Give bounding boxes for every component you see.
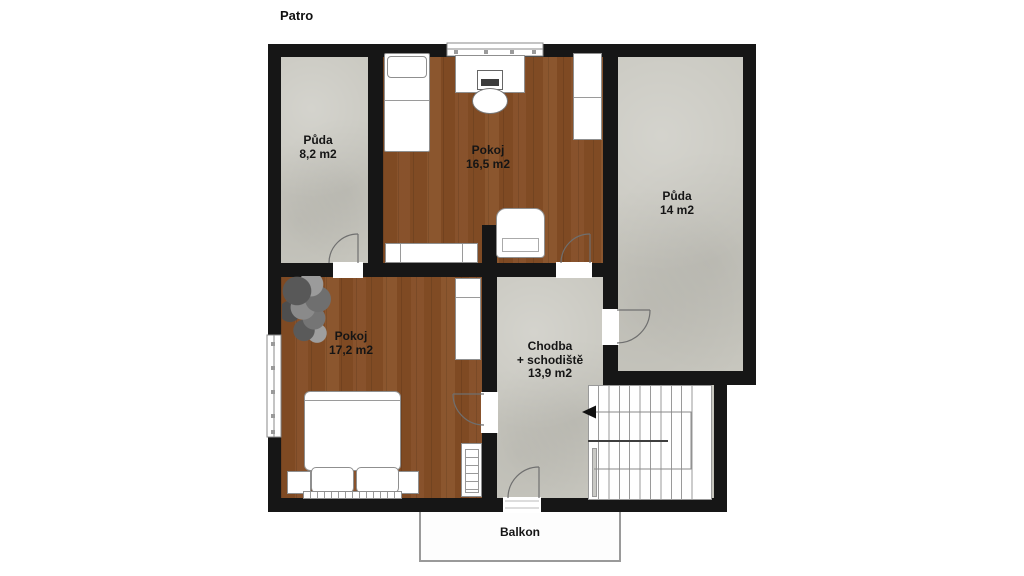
- wardrobe-top-divider: [574, 97, 601, 98]
- room-area: 13,9 m2: [494, 367, 606, 381]
- label-bedroom-top: Pokoj 16,5 m2: [440, 144, 536, 171]
- label-hallway: Chodba + schodiště 13,9 m2: [494, 340, 606, 381]
- room-area: 14 m2: [629, 204, 725, 218]
- wardrobe-bottom-room: [455, 278, 481, 360]
- room-name: Půda: [270, 134, 366, 148]
- double-bed-pillow-right: [356, 467, 399, 493]
- floor-plan: Patro Balkon: [0, 0, 1024, 576]
- stair-walk-line: [582, 406, 691, 470]
- window-left: [267, 335, 281, 437]
- stair-direction-arrow: [582, 406, 596, 419]
- armchair-seat: [502, 238, 539, 252]
- label-bedroom-bottom: Pokoj 17,2 m2: [303, 330, 399, 357]
- double-bed-headboard: [303, 491, 402, 499]
- double-bed-fold-line: [305, 400, 400, 401]
- wardrobe-bottom-divider: [456, 297, 480, 298]
- room-name-2: + schodiště: [494, 354, 606, 368]
- room-name: Pokoj: [303, 330, 399, 344]
- room-area: 16,5 m2: [440, 158, 536, 172]
- label-attic-small: Půda 8,2 m2: [270, 134, 366, 161]
- door-bedroom-bottom: [453, 394, 484, 425]
- dresser-drawers: [465, 449, 479, 493]
- monitor: [477, 70, 503, 90]
- office-chair: [472, 88, 508, 114]
- single-bed-pillow: [387, 56, 427, 78]
- door-attic-small: [329, 234, 358, 263]
- single-bed-blanket-line: [385, 100, 429, 101]
- door-bedroom-top: [561, 234, 590, 263]
- sideboard-divider-1: [400, 244, 401, 262]
- sideboard-divider-2: [462, 244, 463, 262]
- door-attic-large: [617, 310, 650, 343]
- room-area: 17,2 m2: [303, 344, 399, 358]
- label-attic-large: Půda 14 m2: [629, 190, 725, 217]
- monitor-screen: [481, 79, 499, 86]
- double-bed-duvet: [304, 391, 401, 471]
- dresser: [461, 443, 482, 497]
- room-name: Pokoj: [440, 144, 536, 158]
- door-balcony: [508, 467, 539, 498]
- sideboard: [385, 243, 478, 263]
- room-name: Chodba: [494, 340, 606, 354]
- double-bed-pillow-left: [311, 467, 354, 493]
- room-area: 8,2 m2: [270, 148, 366, 162]
- room-name: Půda: [629, 190, 725, 204]
